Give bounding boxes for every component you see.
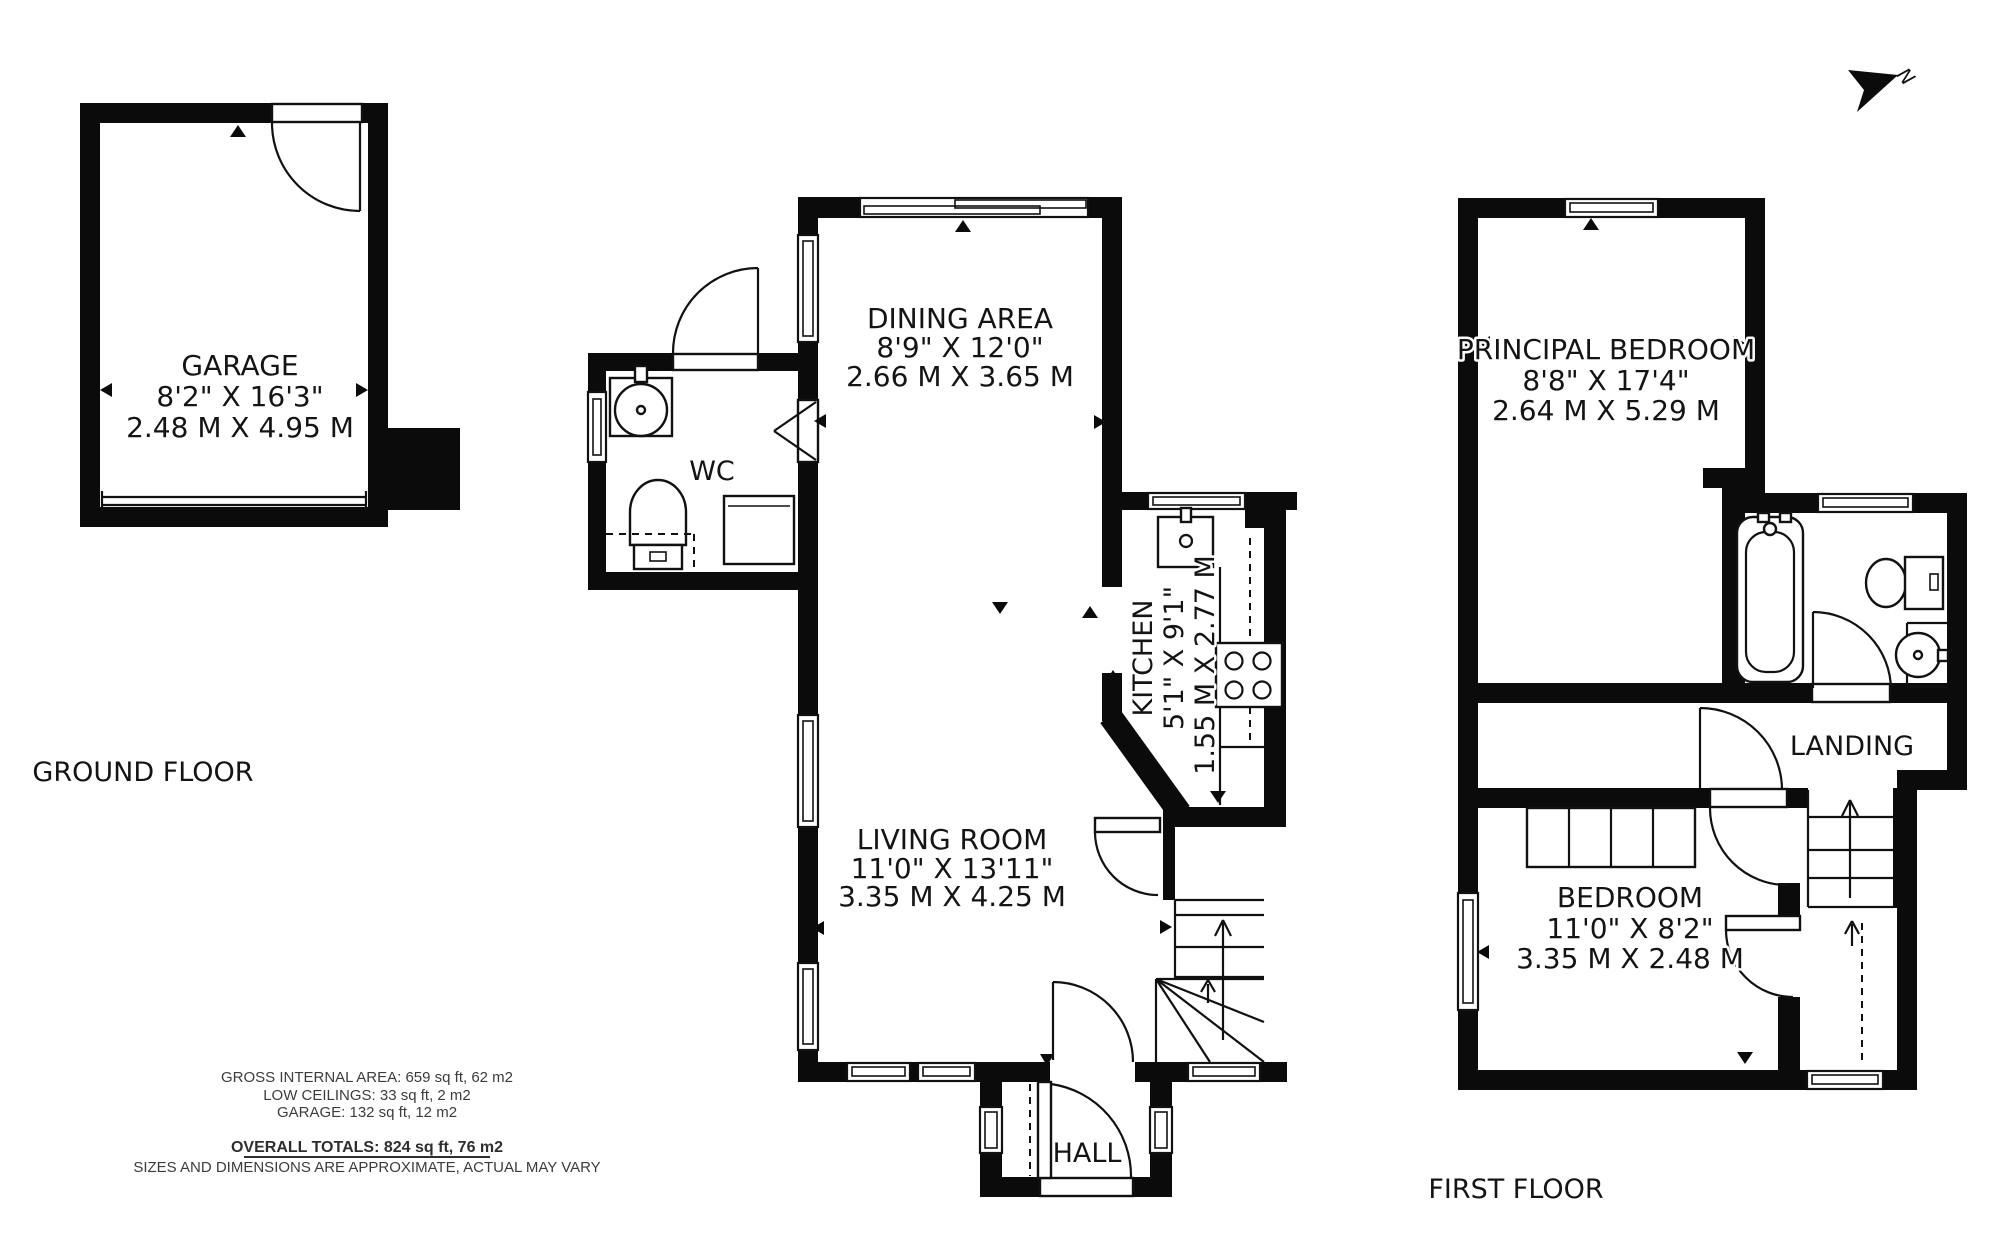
lobby-door-leaf xyxy=(1095,818,1160,832)
bathtub-tap xyxy=(1780,513,1791,522)
ground-floor-plan: GARAGE 8'2" X 16'3" 2.48 M X 4.95 M xyxy=(32,103,1297,1197)
bedroom-storage-wall-lower xyxy=(1778,997,1800,1070)
room-hall: HALL xyxy=(980,982,1172,1197)
bathroom-fixtures xyxy=(1737,513,1948,690)
garage-link-wall xyxy=(368,428,460,510)
summary-gross-area: GROSS INTERNAL AREA: 659 sq ft, 62 m2 xyxy=(221,1069,513,1086)
wc-basin-tap xyxy=(635,366,647,382)
garage-label: GARAGE xyxy=(181,349,298,382)
dimension-arrow-up-icon xyxy=(230,125,246,137)
principal-bedroom-label: PRINCIPAL BEDROOM xyxy=(1457,333,1755,366)
principal-bedroom-labels: PRINCIPAL BEDROOM 8'8" X 17'4" 2.64 M X … xyxy=(1457,333,1755,427)
storage-window-bottom xyxy=(1807,1071,1883,1089)
summary-garage: GARAGE: 132 sq ft, 12 m2 xyxy=(277,1104,457,1121)
principal-bedroom-dim-imperial: 8'8" X 17'4" xyxy=(1522,364,1689,397)
stair-window-bottom xyxy=(1188,1063,1260,1081)
dining-dim-metric: 2.66 M X 3.65 M xyxy=(846,360,1074,393)
summary-low-ceilings: LOW CEILINGS: 33 sq ft, 2 m2 xyxy=(263,1087,471,1104)
bathroom-basin-tap xyxy=(1938,650,1948,661)
principal-bottom-wall xyxy=(1478,683,1967,703)
bathroom-door-opening xyxy=(1812,684,1890,702)
garage-door-leaf xyxy=(272,104,362,122)
dimension-arrow-up-icon xyxy=(1583,218,1599,230)
first-floor-plan: LANDING BEDROOM xyxy=(1428,198,1967,1205)
toilet-bowl-icon xyxy=(630,480,686,545)
ff-wall-right-mid xyxy=(1947,493,1967,790)
stove-icon xyxy=(1216,643,1282,707)
page: { "north": { "label": "N" }, "ground_flo… xyxy=(0,0,2000,1251)
wc-label: WC xyxy=(689,456,735,487)
summary-disclaimer: SIZES AND DIMENSIONS ARE APPROXIMATE, AC… xyxy=(133,1159,600,1176)
stair-wall-right xyxy=(1893,788,1917,908)
dimension-arrow-up-icon xyxy=(955,220,971,232)
dining-window-left xyxy=(798,235,818,342)
north-arrow: N xyxy=(1848,63,1920,112)
bathroom-window xyxy=(1818,494,1913,512)
bedroom-dim-metric: 3.35 M X 2.48 M xyxy=(1516,942,1744,975)
wc-wall-left xyxy=(588,353,606,590)
room-wc: WC xyxy=(588,268,818,590)
garage-dim-imperial: 8'2" X 16'3" xyxy=(156,380,323,413)
principal-window-top xyxy=(1565,199,1658,217)
wc-basin-drain xyxy=(637,406,645,414)
room-garage: GARAGE 8'2" X 16'3" 2.48 M X 4.95 M xyxy=(80,103,388,527)
living-window-bottom-1 xyxy=(847,1063,910,1081)
bathroom-basin-drain xyxy=(1914,651,1922,659)
stairs-ground-floor xyxy=(1095,818,1264,1062)
wc-door-opening xyxy=(673,354,758,370)
bedroom-dim-imperial: 11'0" X 8'2" xyxy=(1546,912,1713,945)
area-summary: GROSS INTERNAL AREA: 659 sq ft, 62 m2 LO… xyxy=(133,1069,600,1176)
garage-wall-left xyxy=(80,103,100,527)
lobby-door-swing-arc xyxy=(1095,832,1158,895)
ground-floor-labels: DINING AREA 8'9" X 12'0" 2.66 M X 3.65 M… xyxy=(812,302,1221,935)
bedroom-area: BEDROOM 11'0" X 8'2" 3.35 M X 2.48 M xyxy=(1477,790,1753,1064)
storage-door-leaf xyxy=(1726,916,1800,930)
dimension-arrow-down-icon xyxy=(992,602,1008,614)
floor-plan-page: GARAGE 8'2" X 16'3" 2.48 M X 4.95 M xyxy=(0,0,2000,1251)
hall-window-left xyxy=(980,1107,1002,1153)
bedroom-door-opening xyxy=(1710,789,1787,807)
stair-up-arrow-head xyxy=(1842,800,1850,816)
north-letter: N xyxy=(1892,63,1920,90)
wc-wall-bottom xyxy=(588,572,818,590)
dimension-arrow-right-icon xyxy=(1160,920,1172,934)
living-window-left-lower xyxy=(798,963,818,1050)
principal-bedroom-dim-metric: 2.64 M X 5.29 M xyxy=(1492,394,1720,427)
principal-step-wall xyxy=(1703,468,1765,488)
garage-dim-metric: 2.48 M X 4.95 M xyxy=(126,411,354,444)
hall-label: HALL xyxy=(1053,1138,1122,1169)
landing-door-swing-arc xyxy=(1700,708,1782,790)
bathtub-spout xyxy=(1764,523,1776,535)
stair-lobby-wall xyxy=(1163,800,1175,900)
bedroom-window-left xyxy=(1458,893,1478,1010)
kitchen-label: KITCHEN xyxy=(1128,600,1159,717)
toilet-bowl-icon xyxy=(1866,559,1906,607)
north-arrow-icon xyxy=(1848,70,1898,112)
front-door-opening xyxy=(1040,1178,1133,1196)
bedroom-label: BEDROOM xyxy=(1557,881,1703,914)
dimension-arrow-up-icon xyxy=(1082,606,1098,618)
garage-wall-top-left xyxy=(80,103,272,123)
living-window-left-upper xyxy=(798,715,818,827)
kitchen-dim-metric: 1.55 M X 2.77 M xyxy=(1190,555,1221,775)
living-window-bottom-2 xyxy=(918,1063,975,1081)
dimension-arrow-down-icon xyxy=(1737,1052,1753,1064)
garage-wall-bottom xyxy=(80,507,388,527)
kitchen-sink-tap xyxy=(1181,508,1191,522)
wc-window xyxy=(588,392,606,462)
bathroom-door-swing-arc xyxy=(1813,612,1891,690)
kitchen-window-top xyxy=(1148,493,1245,509)
bathtub-tap xyxy=(1758,513,1769,522)
stair-up-arrow-head xyxy=(1223,920,1231,936)
dimension-arrow-left-icon xyxy=(100,383,112,397)
landing-label: LANDING xyxy=(1790,731,1914,762)
floor-plan-canvas: GARAGE 8'2" X 16'3" 2.48 M X 4.95 M xyxy=(0,0,2000,1251)
living-dim-metric: 3.35 M X 4.25 M xyxy=(838,880,1066,913)
kitchen-dim-imperial: 5'1" X 9'1" xyxy=(1159,586,1190,730)
first-floor-title: FIRST FLOOR xyxy=(1428,1174,1603,1205)
winder-tread xyxy=(1156,979,1264,1062)
front-door-leaf xyxy=(1038,1082,1051,1178)
hall-living-door-swing-arc xyxy=(1053,982,1133,1062)
stair-up-arrow-head xyxy=(1850,800,1858,816)
stair-up-arrow-head xyxy=(1215,920,1223,936)
dining-kitchen-wall-upper xyxy=(1102,197,1122,587)
ground-floor-title: GROUND FLOOR xyxy=(32,757,253,788)
wc-door-swing-arc xyxy=(673,268,758,353)
dimension-arrow-right-icon xyxy=(356,383,368,397)
hall-top-wall-right xyxy=(1135,1062,1173,1082)
stairs-first-floor xyxy=(1726,790,1893,1060)
dimension-arrow-down-icon xyxy=(1210,791,1226,803)
summary-overall-totals: OVERALL TOTALS: 824 sq ft, 76 m2 xyxy=(231,1139,503,1156)
bedroom-door-swing-arc xyxy=(1710,808,1787,885)
hall-window-right xyxy=(1150,1107,1172,1153)
wc-splayed-opening xyxy=(798,400,818,462)
kitchen-wall-bottom xyxy=(1175,807,1286,827)
toilet-cistern xyxy=(634,545,682,569)
garage-door-swing-arc xyxy=(272,123,360,211)
